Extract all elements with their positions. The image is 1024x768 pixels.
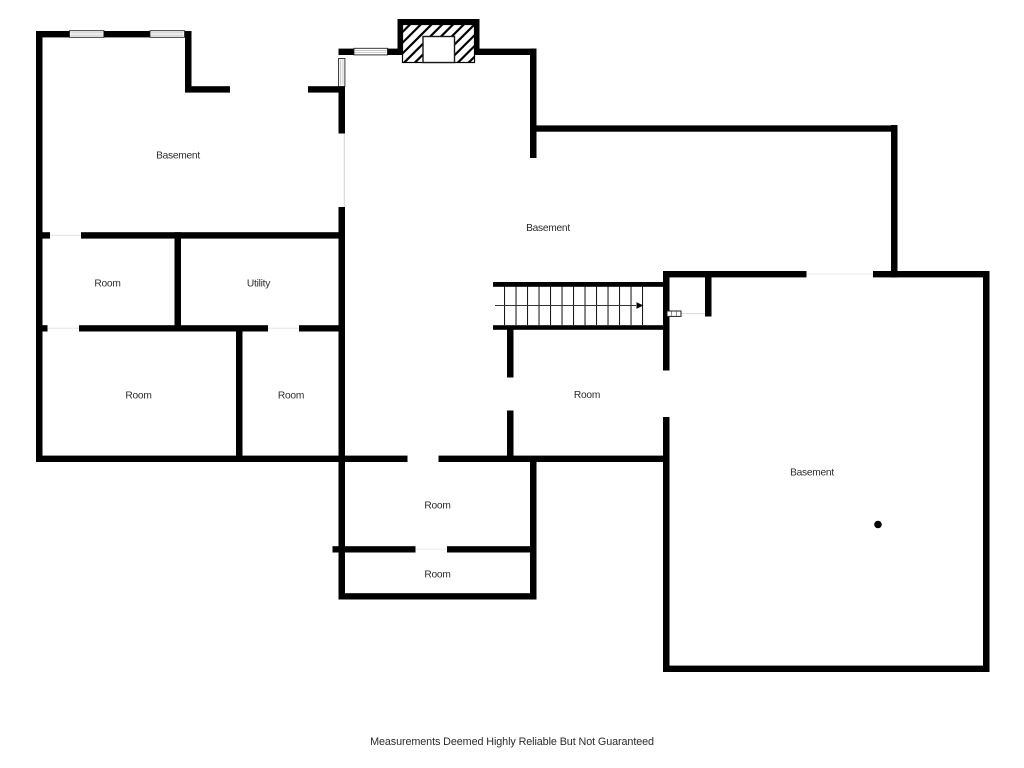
svg-text:Room: Room [424,501,450,512]
svg-text:Basement: Basement [156,151,200,162]
svg-text:Room: Room [94,279,120,290]
svg-text:Measurements Deemed Highly Rel: Measurements Deemed Highly Reliable But … [370,736,654,748]
svg-text:Basement: Basement [526,223,570,234]
svg-text:Utility: Utility [247,279,271,290]
svg-text:Room: Room [278,391,304,402]
svg-text:Room: Room [424,570,450,581]
svg-text:Basement: Basement [790,468,834,479]
svg-text:Room: Room [125,391,151,402]
svg-text:Room: Room [574,390,600,401]
